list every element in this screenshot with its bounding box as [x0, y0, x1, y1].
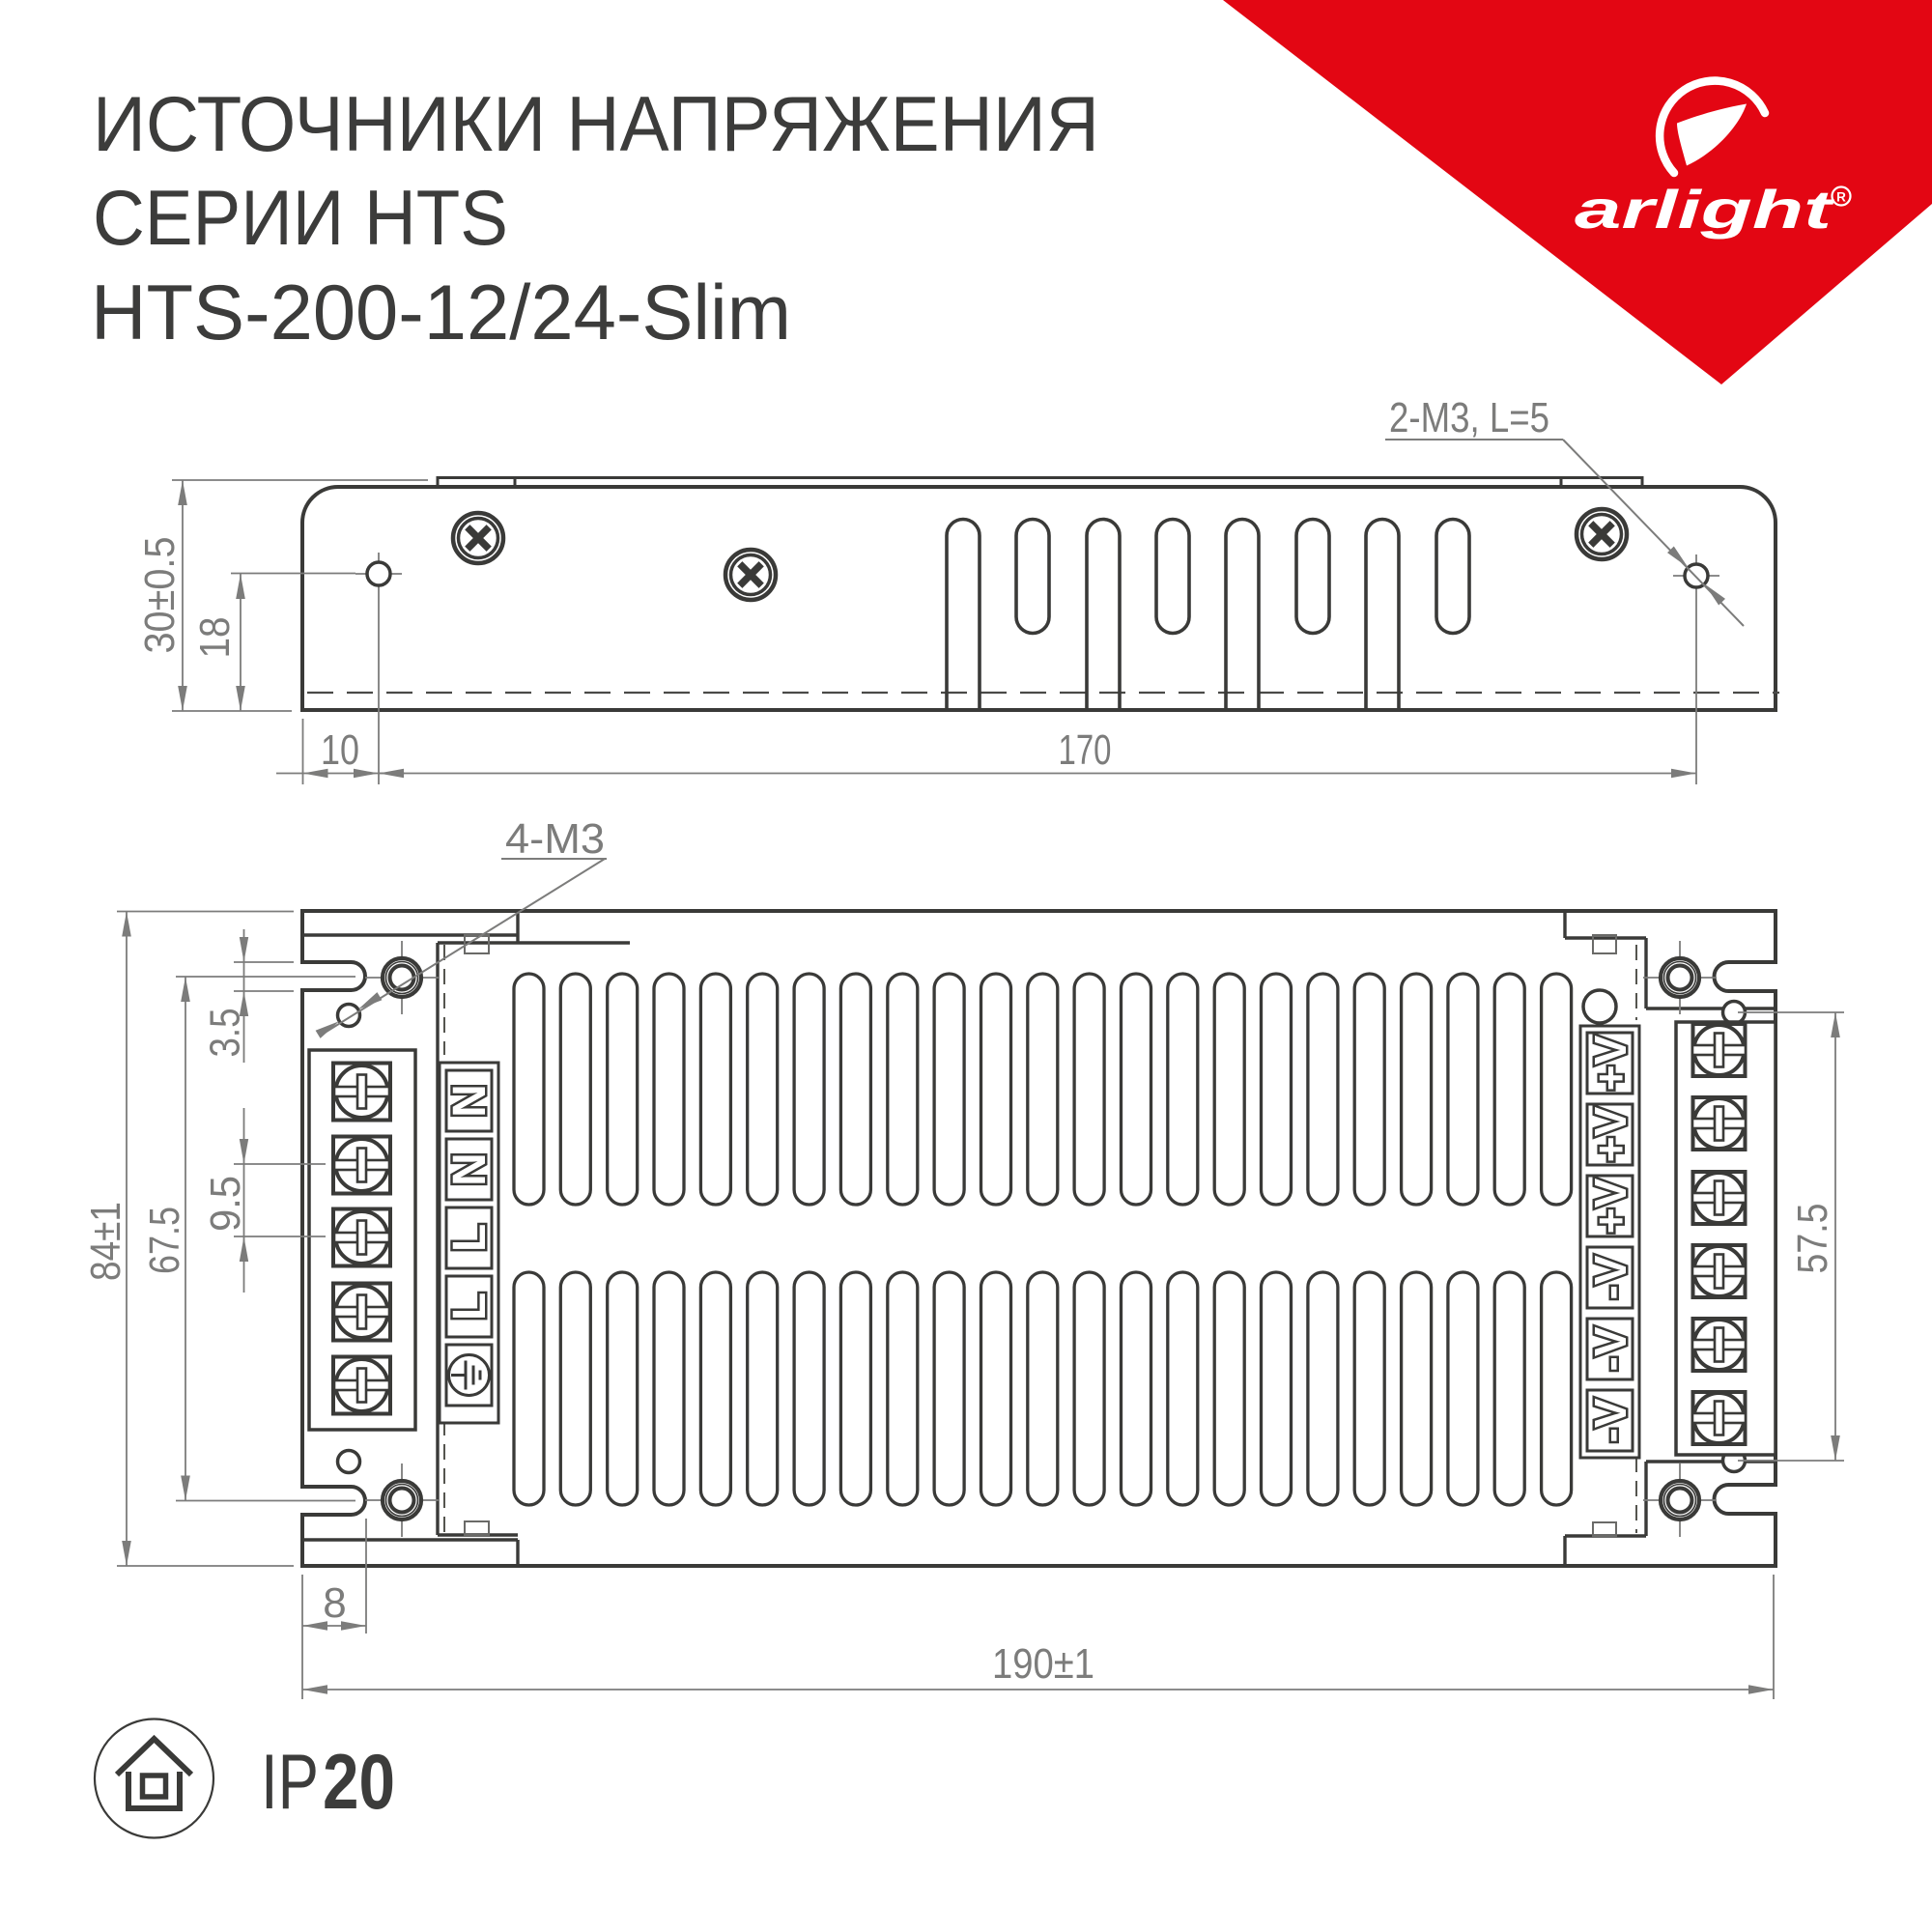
svg-text:-V: -V — [1585, 1255, 1635, 1299]
svg-text:СЕРИИ HTS: СЕРИИ HTS — [93, 175, 508, 262]
svg-text:18: 18 — [191, 617, 239, 659]
svg-text:+V: +V — [1585, 1178, 1635, 1234]
svg-text:8: 8 — [323, 1579, 346, 1627]
svg-text:30±0.5: 30±0.5 — [136, 537, 184, 654]
svg-text:N: N — [444, 1152, 496, 1186]
svg-text:-V: -V — [1585, 1326, 1635, 1371]
svg-text:9.5: 9.5 — [202, 1176, 249, 1232]
svg-text:N: N — [444, 1084, 496, 1118]
svg-text:L: L — [444, 1293, 496, 1321]
svg-text:84±1: 84±1 — [82, 1202, 129, 1281]
svg-text:20: 20 — [323, 1739, 395, 1826]
svg-text:4-M3: 4-M3 — [505, 815, 605, 863]
svg-text:57.5: 57.5 — [1789, 1204, 1836, 1274]
svg-text:190±1: 190±1 — [992, 1640, 1094, 1688]
svg-text:67.5: 67.5 — [141, 1207, 188, 1274]
svg-text:+V: +V — [1585, 1035, 1635, 1091]
svg-text:ИСТОЧНИКИ НАПРЯЖЕНИЯ: ИСТОЧНИКИ НАПРЯЖЕНИЯ — [93, 81, 1099, 168]
svg-text:R: R — [1836, 190, 1846, 205]
svg-text:3.5: 3.5 — [202, 1009, 249, 1058]
svg-text:170: 170 — [1059, 726, 1112, 774]
svg-text:2-M3, L=5: 2-M3, L=5 — [1389, 394, 1549, 441]
svg-text:-V: -V — [1585, 1398, 1635, 1442]
svg-text:HTS-200-12/24-Slim: HTS-200-12/24-Slim — [91, 270, 791, 356]
svg-text:IP: IP — [261, 1739, 319, 1826]
svg-text:10: 10 — [321, 726, 359, 774]
svg-text:L: L — [444, 1224, 496, 1252]
svg-text:+V: +V — [1585, 1106, 1635, 1162]
svg-text:arlight: arlight — [1575, 179, 1835, 240]
